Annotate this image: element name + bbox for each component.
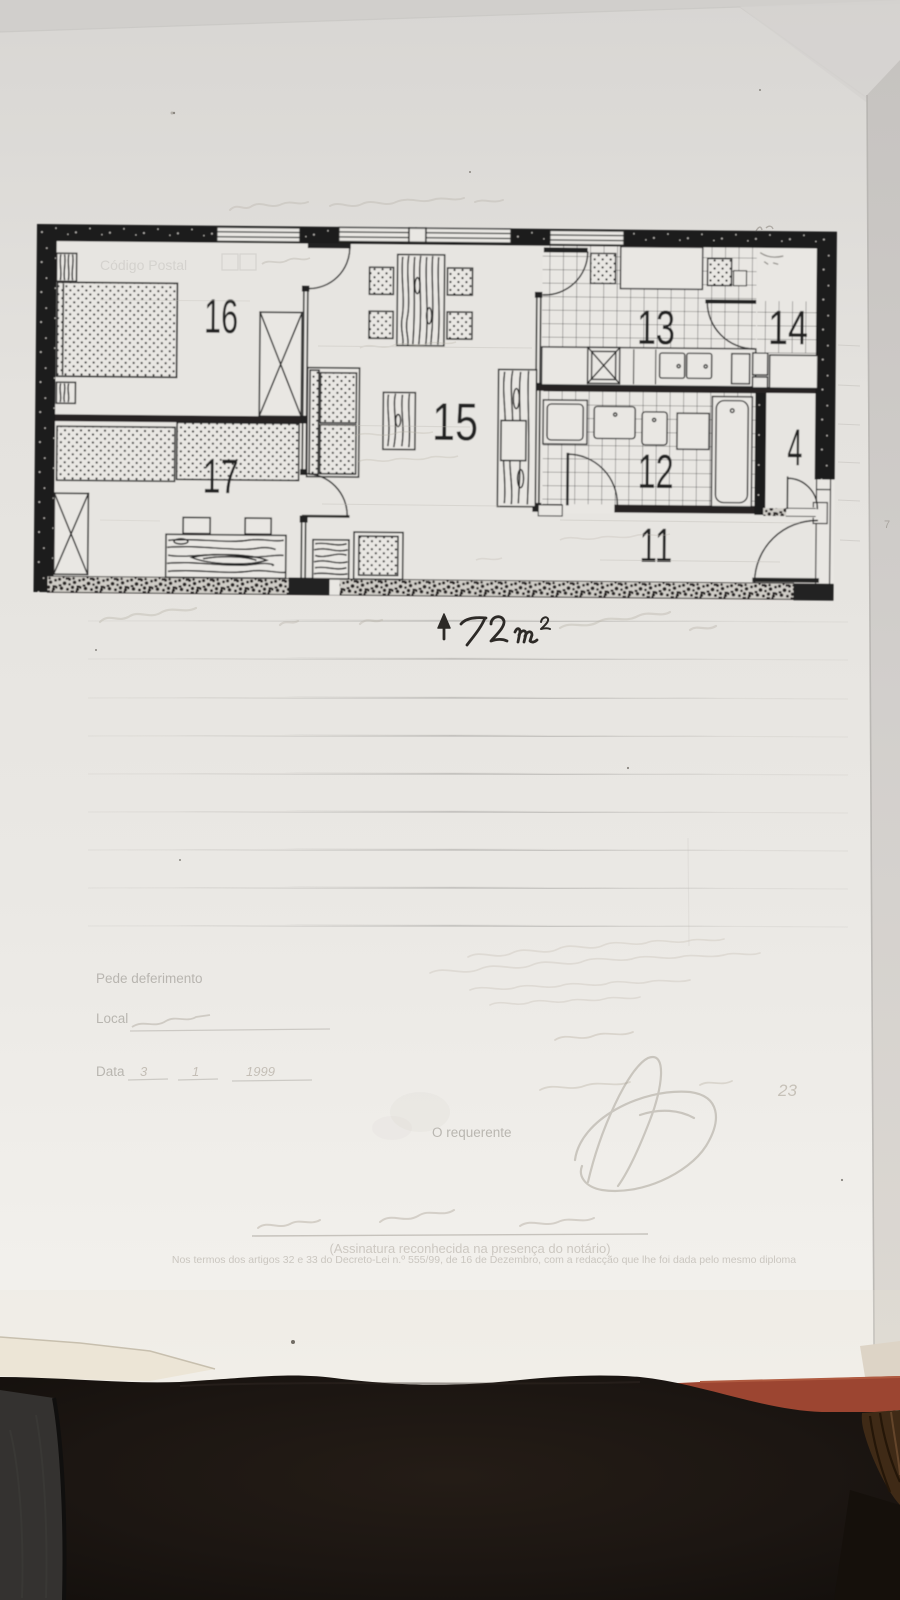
svg-text:3: 3 bbox=[140, 1064, 148, 1079]
svg-text:1: 1 bbox=[192, 1064, 199, 1079]
svg-text:12: 12 bbox=[637, 446, 674, 499]
svg-text:Pede deferimento: Pede deferimento bbox=[96, 971, 203, 986]
svg-text:Local: Local bbox=[96, 1011, 128, 1026]
svg-text:23: 23 bbox=[777, 1081, 797, 1100]
svg-text:16: 16 bbox=[204, 291, 239, 344]
svg-text:O requerente: O requerente bbox=[432, 1125, 512, 1140]
svg-text:Data: Data bbox=[96, 1064, 125, 1079]
svg-text:1999: 1999 bbox=[246, 1064, 275, 1079]
svg-text:4: 4 bbox=[787, 419, 803, 477]
svg-text:Código Postal: Código Postal bbox=[100, 257, 187, 273]
svg-text:17: 17 bbox=[202, 451, 239, 504]
svg-text:14: 14 bbox=[768, 302, 809, 355]
svg-text:15: 15 bbox=[432, 393, 479, 452]
svg-text:7: 7 bbox=[884, 519, 890, 531]
svg-text:13: 13 bbox=[637, 302, 676, 355]
svg-text:11: 11 bbox=[639, 520, 673, 573]
svg-text:Nos termos dos artigos 32 e 33: Nos termos dos artigos 32 e 33 do Decret… bbox=[172, 1254, 796, 1266]
